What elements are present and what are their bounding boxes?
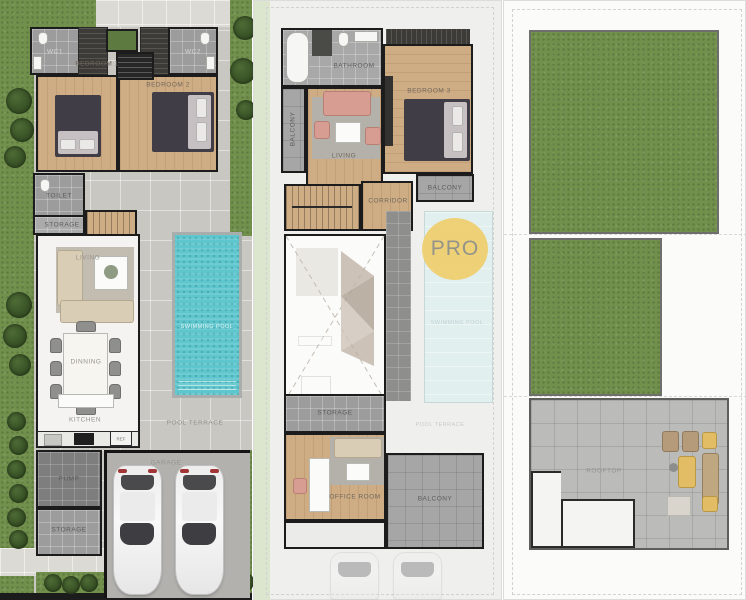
dinning-chair — [50, 338, 62, 353]
dinning-chair — [109, 338, 121, 353]
dinning-chair — [50, 361, 62, 376]
rooftop-round-table — [669, 463, 678, 472]
grid-line — [504, 396, 746, 397]
sink-fixture — [33, 56, 42, 70]
roof-stair-run — [561, 499, 635, 548]
swimming-pool — [172, 232, 242, 398]
rooftop-lounge — [678, 456, 696, 488]
tree-icon — [6, 88, 32, 114]
rooftop-plan: ROOFTOP — [503, 0, 746, 600]
room-label: BALCONY — [418, 496, 453, 503]
car-ghost — [331, 553, 378, 599]
dinning-chair — [76, 321, 96, 332]
toilet-fixture — [200, 32, 210, 45]
kitchen-island — [58, 394, 114, 408]
room-label: LIVING — [76, 255, 100, 262]
plant-icon — [104, 265, 118, 279]
pro-watermark-badge: PRO — [422, 218, 488, 280]
room-label: BALCONY — [428, 185, 463, 192]
lightwell-planter — [106, 29, 138, 52]
room-label: ROOFTOP — [586, 468, 622, 475]
wardrobe-bedroom3 — [386, 29, 470, 44]
stairs-to-roof — [284, 521, 386, 549]
tree-icon — [7, 508, 26, 527]
room-label: SWIMMING POOL — [181, 324, 234, 330]
pro-watermark-label: PRO — [431, 237, 480, 261]
room-label: LIVING — [332, 153, 356, 160]
bed-bedroom1 — [55, 95, 101, 157]
tree-icon — [7, 412, 26, 431]
second-floor-plan: PRO BATHROOM BEDROOM 3 BALCONY LIVING CO… — [253, 0, 502, 600]
tree-icon — [44, 574, 62, 592]
car-ghost — [394, 553, 441, 599]
rooftop-armchair — [662, 431, 679, 452]
tree-icon — [3, 324, 27, 348]
dinning-chair — [109, 361, 121, 376]
room-label: WC2 — [185, 49, 201, 56]
green-roof-upper — [529, 30, 719, 234]
garden-strip-topleft — [0, 0, 96, 27]
sink-fixture — [206, 56, 215, 70]
room-label: GARAGE — [151, 460, 182, 467]
tree-icon — [10, 118, 34, 142]
tree-icon — [9, 530, 28, 549]
living2-table — [335, 122, 361, 143]
living-sofa — [60, 300, 134, 323]
rooftop-side-table — [702, 432, 717, 449]
tree-icon — [7, 460, 26, 479]
tree-icon — [9, 484, 28, 503]
tree-icon — [9, 436, 28, 455]
room-label: POOL TERRACE — [416, 422, 465, 428]
entry-walkway-top — [94, 0, 232, 27]
kitchen-stove — [74, 433, 94, 445]
roof-stair-landing — [531, 471, 561, 548]
car — [114, 466, 161, 594]
vanity-counter — [354, 31, 378, 42]
room-label: STORAGE — [317, 410, 352, 417]
green-roof-lower — [529, 238, 662, 396]
room-label: WC1 — [47, 49, 63, 56]
room-label: BALCONY — [290, 112, 297, 147]
room-label: STORAGE — [51, 527, 86, 534]
office-sofa — [334, 438, 382, 458]
room-label: STORAGE — [44, 222, 79, 229]
rooftop-ottoman — [702, 496, 718, 512]
living2-armchair — [365, 127, 381, 145]
room-label: PUMP — [59, 476, 80, 483]
wardrobe-shower-block — [78, 27, 108, 75]
stair-rail — [292, 206, 352, 208]
bed-bedroom3 — [404, 99, 470, 161]
office-table — [346, 463, 370, 481]
bed-bedroom2 — [152, 92, 214, 152]
rooftop-armchair — [682, 431, 699, 452]
office-desk — [309, 458, 330, 512]
shower-partition — [312, 30, 332, 56]
living2-sofa — [323, 91, 371, 116]
room-label: CORRIDOR — [368, 198, 407, 205]
living2-armchair — [314, 121, 330, 139]
tree-icon — [9, 354, 31, 376]
room-label: TOILET — [46, 193, 72, 200]
dinning-table — [63, 333, 108, 403]
office-chair — [293, 478, 307, 494]
toilet-fixture — [40, 179, 50, 192]
room-label: DINNING — [71, 359, 102, 366]
pool-steps — [178, 378, 236, 390]
toilet-fixture — [38, 32, 48, 45]
car — [176, 466, 223, 594]
room-label: REF — [117, 437, 126, 442]
tree-icon — [4, 146, 26, 168]
room-label: BEDROOM 1 — [75, 61, 119, 68]
toilet-fixture — [338, 32, 349, 47]
stairs-to-second — [85, 210, 137, 236]
room-label: SWIMMING POOL — [431, 320, 484, 326]
tree-icon — [62, 576, 80, 594]
stairs-ground — [116, 52, 154, 80]
tree-icon — [80, 574, 98, 592]
tv-console — [385, 76, 393, 146]
feature-wall — [386, 211, 411, 401]
rooftop-coffee-table — [667, 496, 691, 516]
tree-icon — [6, 292, 32, 318]
bathtub-fixture — [286, 32, 309, 83]
room-label: BEDROOM 2 — [146, 82, 190, 89]
room-label: BATHROOM — [333, 63, 374, 70]
room-label: OFFICE ROOM — [329, 494, 380, 501]
ground-floor-plan: WC1 WC2 BEDROOM 1 BEDROOM 2 TOILET STORA… — [0, 0, 252, 600]
room-label: POOL TERRACE — [167, 420, 224, 427]
kitchen-sink — [44, 434, 62, 446]
room-label: BEDROOM 3 — [407, 88, 451, 95]
grid-line — [504, 234, 746, 235]
void-over-living — [284, 234, 386, 401]
floor-plan-sheet: WC1 WC2 BEDROOM 1 BEDROOM 2 TOILET STORA… — [0, 0, 746, 600]
room-label: KITCHEN — [69, 417, 101, 424]
